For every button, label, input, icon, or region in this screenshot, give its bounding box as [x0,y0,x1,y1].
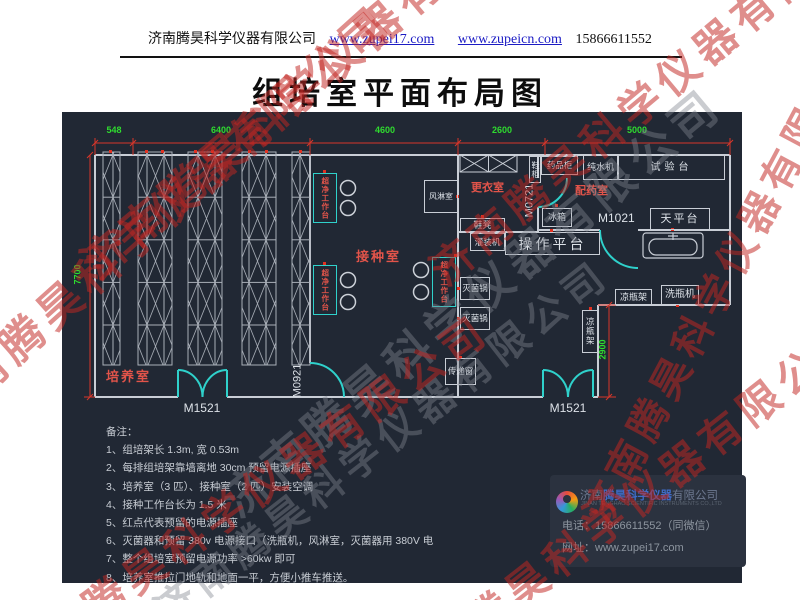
page-title: 组培室平面布局图 [0,68,800,113]
document-header: 济南腾昊科学仪器有限公司 www.zupei17.com www.zupeicn… [0,28,800,48]
door-label-m0921: M0921 [293,356,304,406]
dim-top-548: 548 [100,126,128,135]
dim-top-4600: 4600 [365,126,405,135]
bottle-rack-box-v: 凉瓶架 [582,310,598,353]
notes-section: 备注： 1、组培架长 1.3m, 宽 0.53m 2、每排组培架靠墙离地 30c… [106,423,433,587]
note-line: 5、红点代表预留的电源插座 [106,514,433,532]
note-line: 2、每排组培架靠墙离地 30cm 预留电源插座 [106,459,433,477]
header-company: 济南腾昊科学仪器有限公司 [148,32,316,47]
room-label-changing: 更衣室 [471,183,504,194]
dim-top-5000: 5000 [617,126,657,135]
door-label-m1521-left: M1521 [172,402,232,414]
header-phone: 15866611552 [575,32,651,47]
pass-window-box: 传递窗 [445,358,476,385]
note-line: 8、培养室推拉门地轨和地面一平，方便小推车推送。 [106,569,433,587]
bottle-washer-box: 洗瓶机 [661,285,699,305]
company-phone: 电话：15866611552（同微信） [562,517,716,533]
stools [341,181,429,310]
header-link-2[interactable]: www.zupeicn.com [458,32,562,47]
company-website[interactable]: 网址：www.zupei17.com [562,539,684,555]
note-line: 3、培养室（3 匹）、接种室（2 匹）安装空调 [106,478,433,496]
clean-bench-3: 超净工作台 [432,257,456,307]
company-logo-icon [556,491,578,513]
room-label-culture: 培养室 [106,370,151,383]
company-card: 济南腾昊科学仪器有限公司 JINAN TENGHAO SCIENTIFIC IN… [550,475,746,567]
filling-machine-box: 灌装机 [470,233,505,251]
clean-bench-1: 超净工作台 [313,173,337,223]
dim-right-2900: 2900 [599,325,608,375]
locker-cabinet [460,155,517,172]
company-name-en: JINAN TENGHAO SCIENTIFIC INSTRUMENTS CO.… [581,501,722,507]
shoe-bench-box: 鞋凳 [460,218,505,232]
shoe-cabinet-box: 鞋柜 [529,156,541,183]
culture-racks [103,152,310,365]
dim-left-7700: 7700 [74,250,83,300]
operation-platform-box: 操作平台 [505,232,600,255]
dim-top-2600: 2600 [482,126,522,135]
balance-table-box: 天平台 [650,208,710,230]
sterilizer-box-1: 灭菌锅 [460,277,490,300]
note-line: 7、整个组培室预留电源功率 >60kw 即可 [106,550,433,568]
page: 济南腾昊科学仪器有限公司 www.zupei17.com www.zupeicn… [0,0,800,600]
dim-top-6400: 6400 [201,126,241,135]
door-label-m0721: M0721 [525,176,536,226]
note-line: 4、接种工作台长为 1.5 米 [106,496,433,514]
room-label-dispensing: 配药室 [575,186,608,197]
header-divider [120,56,682,58]
header-link-1[interactable]: www.zupei17.com [330,32,435,47]
water-machine-box: 纯水机 [583,155,618,180]
medicine-cabinet-box: 药品柜 [541,156,578,175]
test-bench-box: 试验台 [618,155,725,180]
bottle-rack-box-h: 凉瓶架 [615,289,652,305]
sterilizer-box-2: 灭菌锅 [460,307,490,330]
fridge-box: 冰箱 [542,208,572,227]
door-label-m1521-right: M1521 [538,402,598,414]
sink [643,233,703,258]
door-label-m1021: M1021 [598,212,635,224]
room-label-inoculation: 接种室 [356,250,401,263]
notes-title: 备注： [106,423,433,441]
note-line: 6、灭菌器和预留 380v 电源接口（洗瓶机，风淋室，灭菌器用 380V 电 [106,532,433,550]
air-shower-box: 风淋室 [424,180,458,213]
cad-panel: 548 6400 4600 2600 5000 7700 2900 培养室 接种… [62,112,742,583]
clean-bench-2: 超净工作台 [313,265,337,315]
note-line: 1、组培架长 1.3m, 宽 0.53m [106,441,433,459]
